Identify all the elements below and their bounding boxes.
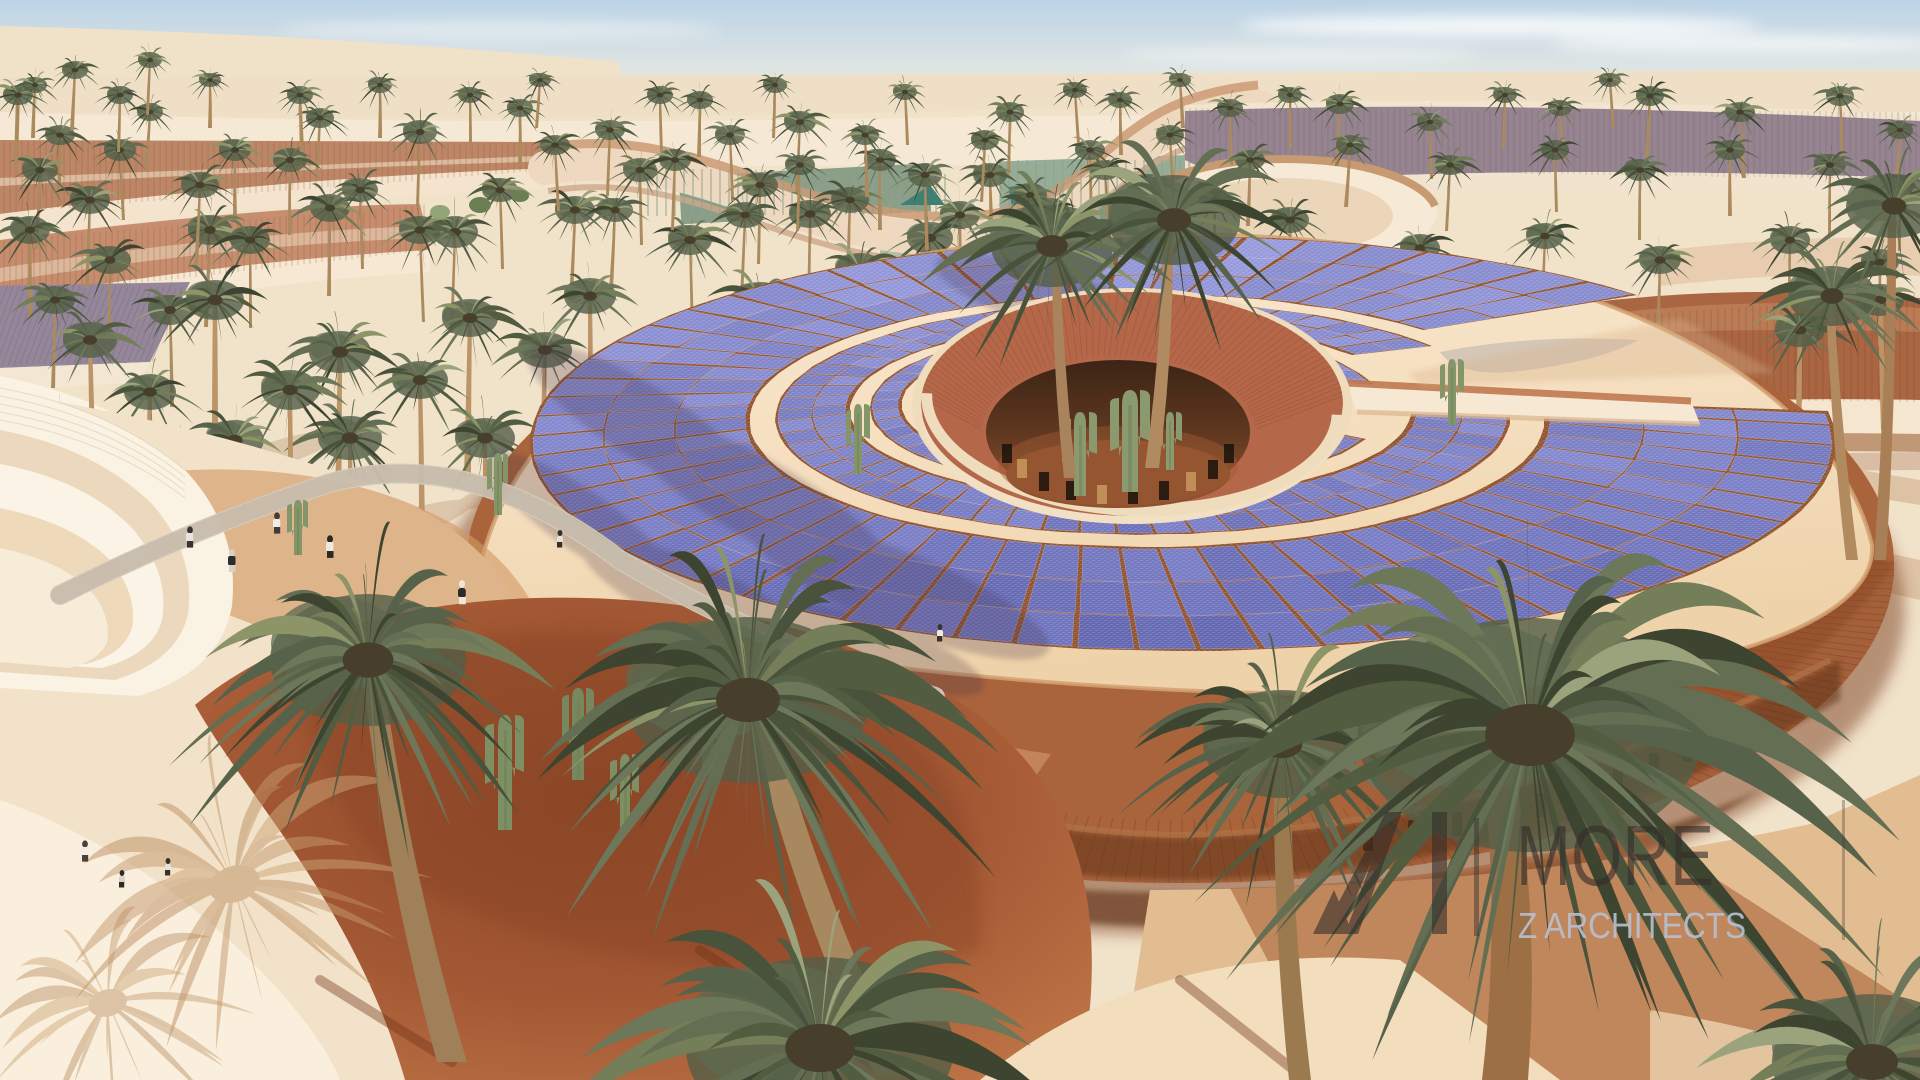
svg-text:Z ARCHITECTS: Z ARCHITECTS (1518, 905, 1746, 946)
svg-text:MORE: MORE (1516, 809, 1714, 904)
